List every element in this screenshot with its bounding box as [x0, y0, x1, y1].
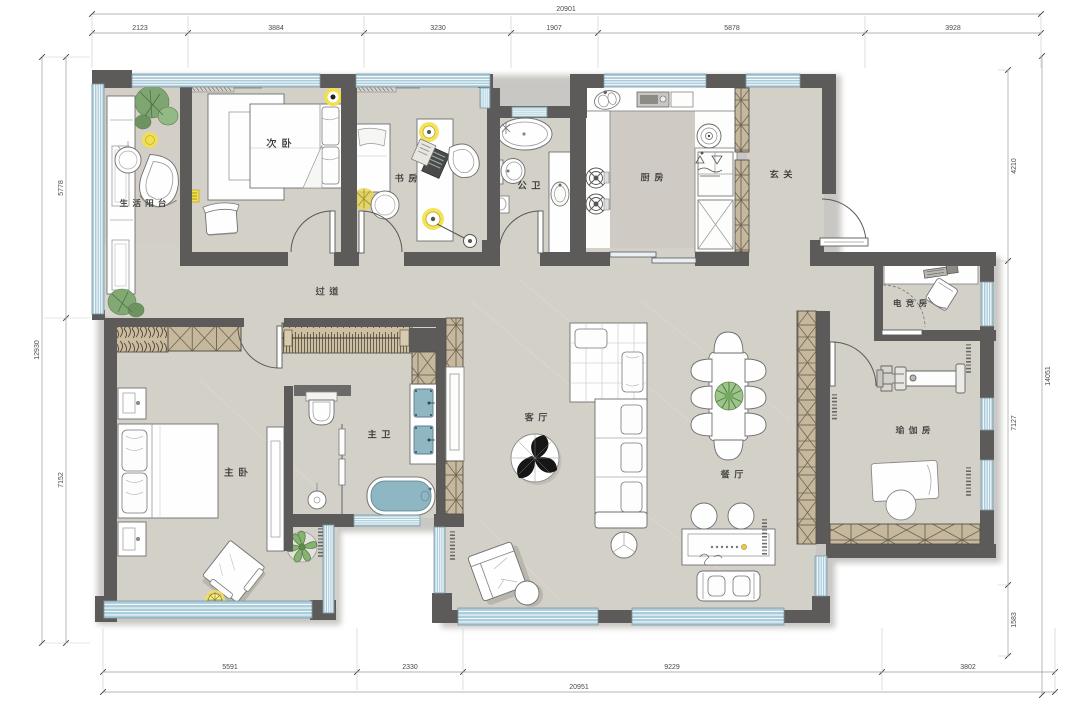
svg-text:3884: 3884	[268, 25, 284, 32]
svg-text:5878: 5878	[724, 25, 740, 32]
svg-text:5591: 5591	[222, 664, 238, 671]
svg-text:3230: 3230	[430, 25, 446, 32]
svg-text:4210: 4210	[1011, 158, 1018, 174]
svg-text:12930: 12930	[34, 340, 41, 360]
svg-text:1907: 1907	[546, 25, 562, 32]
svg-text:2123: 2123	[132, 25, 148, 32]
svg-text:3928: 3928	[945, 25, 961, 32]
svg-text:7127: 7127	[1011, 415, 1018, 431]
svg-text:14051: 14051	[1045, 366, 1052, 386]
svg-text:20951: 20951	[569, 684, 589, 691]
svg-text:9229: 9229	[664, 664, 680, 671]
svg-text:7152: 7152	[58, 472, 65, 488]
svg-text:1583: 1583	[1011, 612, 1018, 628]
svg-text:20901: 20901	[556, 6, 576, 13]
svg-text:3802: 3802	[960, 664, 976, 671]
svg-text:5778: 5778	[58, 180, 65, 196]
svg-text:2330: 2330	[402, 664, 418, 671]
